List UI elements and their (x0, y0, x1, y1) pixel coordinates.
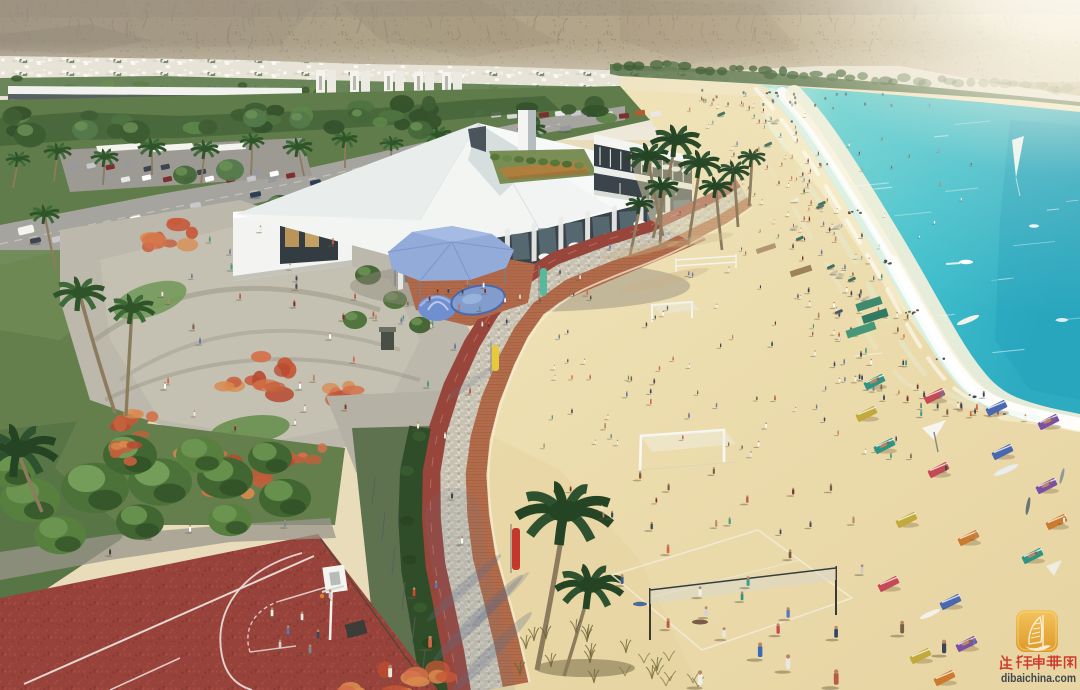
svg-text:dibaichina.com: dibaichina.com (1001, 671, 1076, 685)
